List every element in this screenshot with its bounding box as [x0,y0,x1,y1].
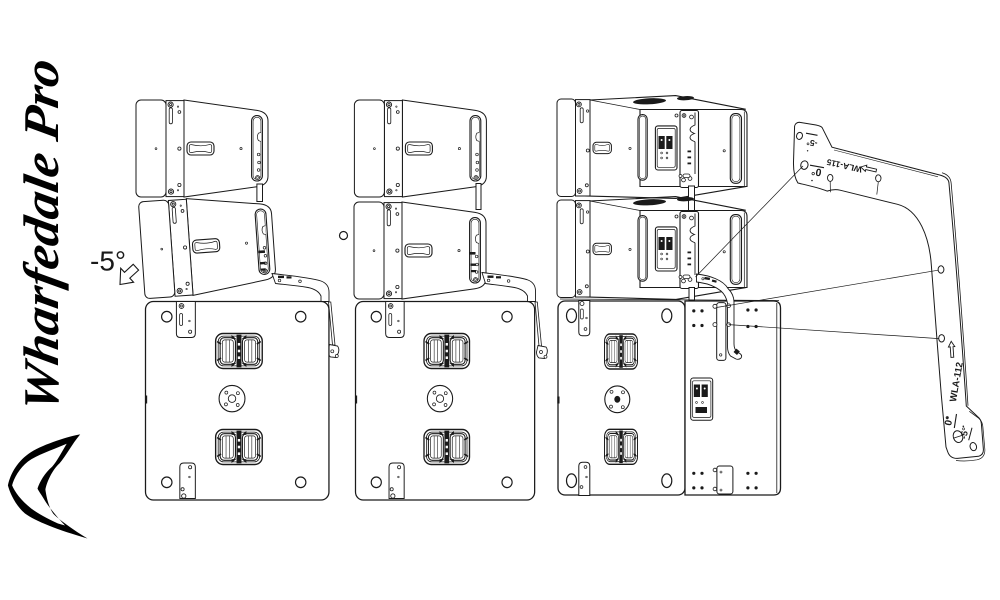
svg-text:Wharfedale Pro: Wharfedale Pro [13,54,69,416]
